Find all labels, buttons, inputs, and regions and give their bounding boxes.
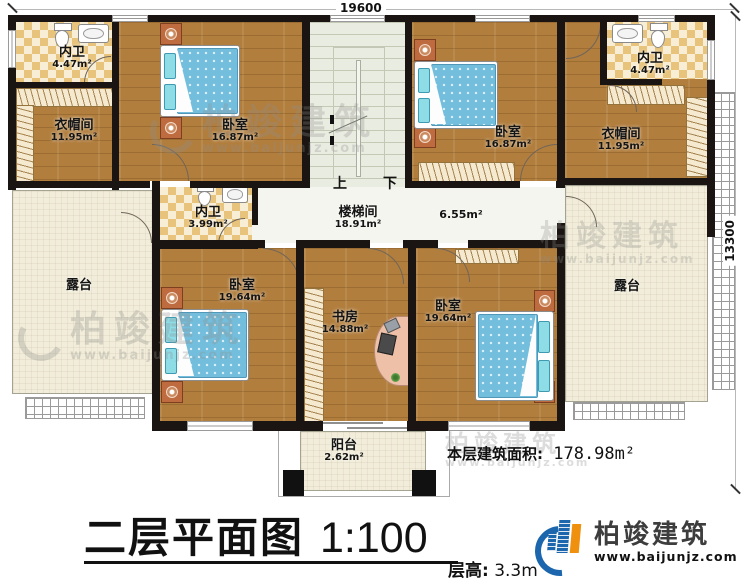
stair-down-label: 下: [383, 173, 397, 193]
floor-area-line: 本层建筑面积: 178.98m²: [447, 443, 635, 464]
wall-segment: [557, 223, 565, 430]
room-label-bath-middle: 内卫 3.99m²: [188, 206, 227, 230]
floor-height-line: 层高: 3.3m: [448, 556, 538, 580]
wall-segment: [152, 181, 160, 249]
toilet-icon: [650, 23, 666, 48]
room-label-bedroom-top-left: 卧室 16.87m²: [212, 119, 258, 143]
floor-area-value: 178.98m²: [543, 444, 635, 464]
sink-icon: [222, 186, 248, 203]
floor-height-value: 3.3m: [489, 561, 538, 580]
window: [448, 421, 530, 431]
dimension-top-value: 19600: [336, 1, 386, 15]
nightstand: [161, 287, 183, 309]
sink-icon: [78, 24, 109, 43]
window: [638, 15, 675, 22]
balcony-column: [283, 470, 304, 496]
wall-segment: [112, 15, 119, 190]
stair-break-mark: [330, 136, 334, 145]
hallway-floor: [252, 187, 565, 243]
stair-up-label: 上: [333, 173, 347, 193]
brand-logo-text: 柏竣建筑 www.baijunjz.com: [594, 522, 738, 564]
drawing-title: 二层平面图: [84, 513, 304, 562]
dimension-right-value: 13300: [723, 216, 737, 266]
room-label-bedroom-top-right: 卧室 16.87m²: [485, 126, 531, 150]
room-label-hallway-area: 6.55m²: [439, 209, 482, 221]
sheet-fold: [431, 64, 446, 124]
wall-segment: [190, 181, 310, 188]
dimension-tick: [7, 3, 18, 14]
room-label-bath-top-left: 内卫 4.47m²: [52, 46, 91, 70]
terrace-left-railing: [25, 397, 145, 419]
floor-height-label: 层高:: [448, 561, 489, 580]
brand-logo-icon: [534, 517, 588, 569]
sink-icon: [612, 24, 643, 43]
sliding-door: [347, 427, 407, 429]
nightstand: [414, 39, 436, 61]
room-label-terrace-right: 露台: [614, 280, 640, 294]
brand-logo: 柏竣建筑 www.baijunjz.com: [534, 517, 738, 569]
wardrobe-hatch: [455, 249, 519, 264]
window: [8, 30, 16, 68]
nightstand: [534, 290, 555, 312]
wall-segment: [8, 82, 119, 88]
drawing-scale: 1:100: [320, 514, 428, 562]
room-label-stair-hall: 楼梯间 18.91m²: [335, 206, 381, 230]
wardrobe-hatch: [418, 162, 515, 182]
nightstand: [160, 23, 182, 45]
brand-name: 柏竣建筑: [594, 522, 738, 549]
wall-segment: [302, 15, 310, 188]
wall-segment: [600, 15, 607, 85]
plant-icon: [391, 373, 400, 382]
bed: [475, 311, 554, 401]
drawing-title-line: 二层平面图1:100: [84, 504, 428, 565]
pillow: [165, 348, 177, 374]
wall-segment: [296, 240, 304, 430]
room-label-balcony: 阳台 2.62m²: [324, 439, 363, 463]
sheet-fold: [520, 314, 536, 396]
wall-segment: [300, 240, 370, 248]
wall-segment: [152, 240, 265, 248]
room-label-study: 书房 14.88m²: [322, 311, 368, 335]
wall-segment: [252, 181, 258, 225]
pillow: [164, 53, 176, 79]
nightstand: [161, 381, 183, 403]
floor-area-label: 本层建筑面积:: [447, 445, 543, 463]
window: [112, 15, 148, 22]
balcony-column: [412, 470, 436, 496]
wall-segment: [557, 15, 565, 188]
wall-segment: [408, 240, 416, 430]
nightstand: [414, 126, 436, 148]
sheet-fold: [177, 48, 193, 112]
sliding-door: [323, 422, 383, 424]
wall-segment: [557, 178, 715, 185]
wall-segment: [152, 240, 160, 430]
room-label-closet-top-left: 衣帽间 11.95m²: [51, 119, 97, 143]
wall-segment: [600, 79, 662, 85]
nightstand: [160, 117, 182, 139]
pillow: [418, 68, 430, 93]
wall-segment: [405, 15, 412, 188]
window: [187, 421, 253, 431]
title-underline: [84, 561, 458, 564]
bed: [160, 45, 240, 117]
wall-segment: [8, 181, 150, 188]
room-label-terrace-left: 露台: [66, 279, 92, 293]
room-label-bedroom-bottom-left: 卧室 19.64m²: [219, 279, 265, 303]
wall-segment: [405, 181, 520, 188]
terrace-right-bottom-railing: [573, 402, 685, 420]
floor-plan-canvas: 19600 13300: [0, 0, 750, 580]
pillow: [165, 317, 177, 343]
bed: [161, 309, 249, 381]
pillow: [538, 321, 550, 353]
room-label-closet-top-right: 衣帽间 11.95m²: [598, 128, 644, 152]
sheet-fold: [178, 312, 194, 376]
room-label-bedroom-bottom-right: 卧室 19.64m²: [425, 300, 471, 324]
stair-break-mark: [330, 115, 334, 124]
window: [330, 15, 385, 22]
window: [707, 40, 715, 80]
closet-hatch: [686, 97, 708, 177]
room-label-bath-top-right: 内卫 4.47m²: [630, 52, 669, 76]
pillow: [538, 360, 550, 392]
closet-hatch: [16, 105, 34, 183]
bed: [414, 61, 498, 129]
pillow: [164, 84, 176, 110]
pillow: [418, 98, 430, 123]
brand-url: www.baijunjz.com: [594, 549, 738, 564]
window: [475, 15, 530, 22]
wall-segment: [468, 240, 565, 248]
wardrobe-hatch: [304, 288, 324, 423]
